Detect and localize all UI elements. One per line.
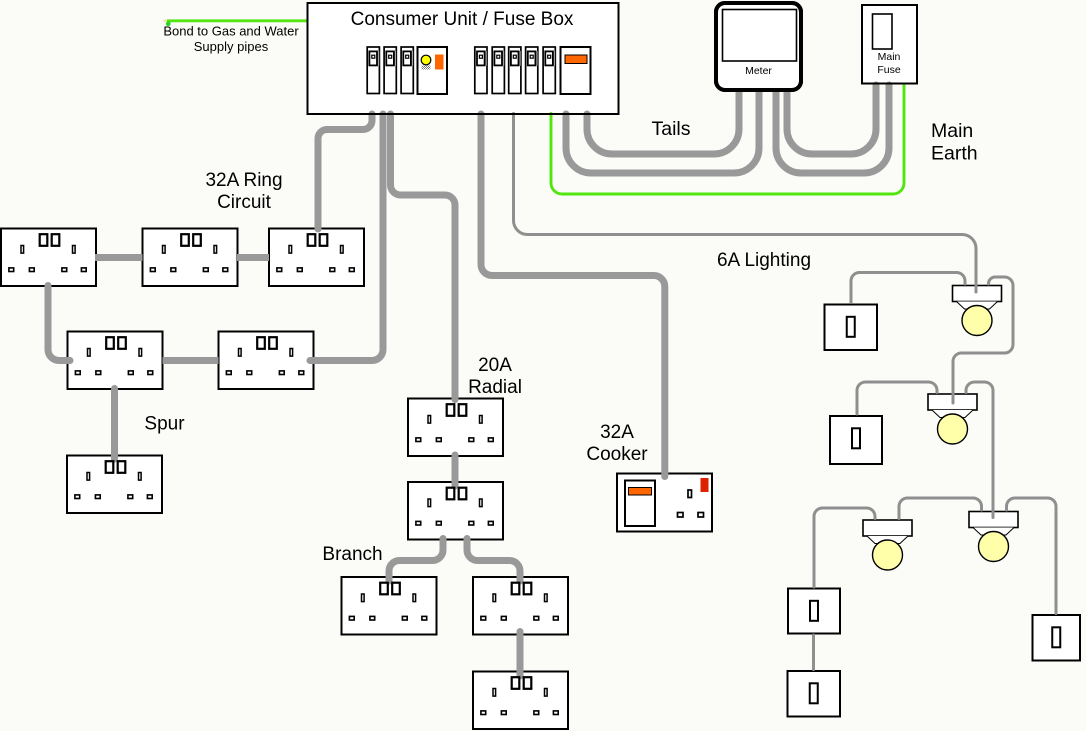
svg-text:32A Ring: 32A Ring xyxy=(205,170,282,191)
svg-text:Main: Main xyxy=(931,120,973,142)
svg-text:Circuit: Circuit xyxy=(217,192,272,213)
svg-text:Meter: Meter xyxy=(745,65,772,77)
svg-text:Fuse: Fuse xyxy=(877,64,901,76)
svg-text:Cooker: Cooker xyxy=(586,444,648,465)
svg-text:Branch: Branch xyxy=(322,544,382,565)
svg-text:Spur: Spur xyxy=(144,414,185,435)
svg-text:Supply pipes: Supply pipes xyxy=(194,39,269,54)
svg-text:Main: Main xyxy=(878,51,901,63)
svg-text:Tails: Tails xyxy=(651,118,690,140)
svg-text:Radial: Radial xyxy=(468,377,522,398)
svg-text:Bond to Gas and Water: Bond to Gas and Water xyxy=(163,24,299,39)
svg-text:6A Lighting: 6A Lighting xyxy=(717,250,811,271)
svg-text:Earth: Earth xyxy=(931,143,978,165)
svg-text:20A: 20A xyxy=(478,355,512,376)
svg-text:32A: 32A xyxy=(600,422,634,443)
svg-text:Consumer Unit / Fuse Box: Consumer Unit / Fuse Box xyxy=(351,9,574,30)
